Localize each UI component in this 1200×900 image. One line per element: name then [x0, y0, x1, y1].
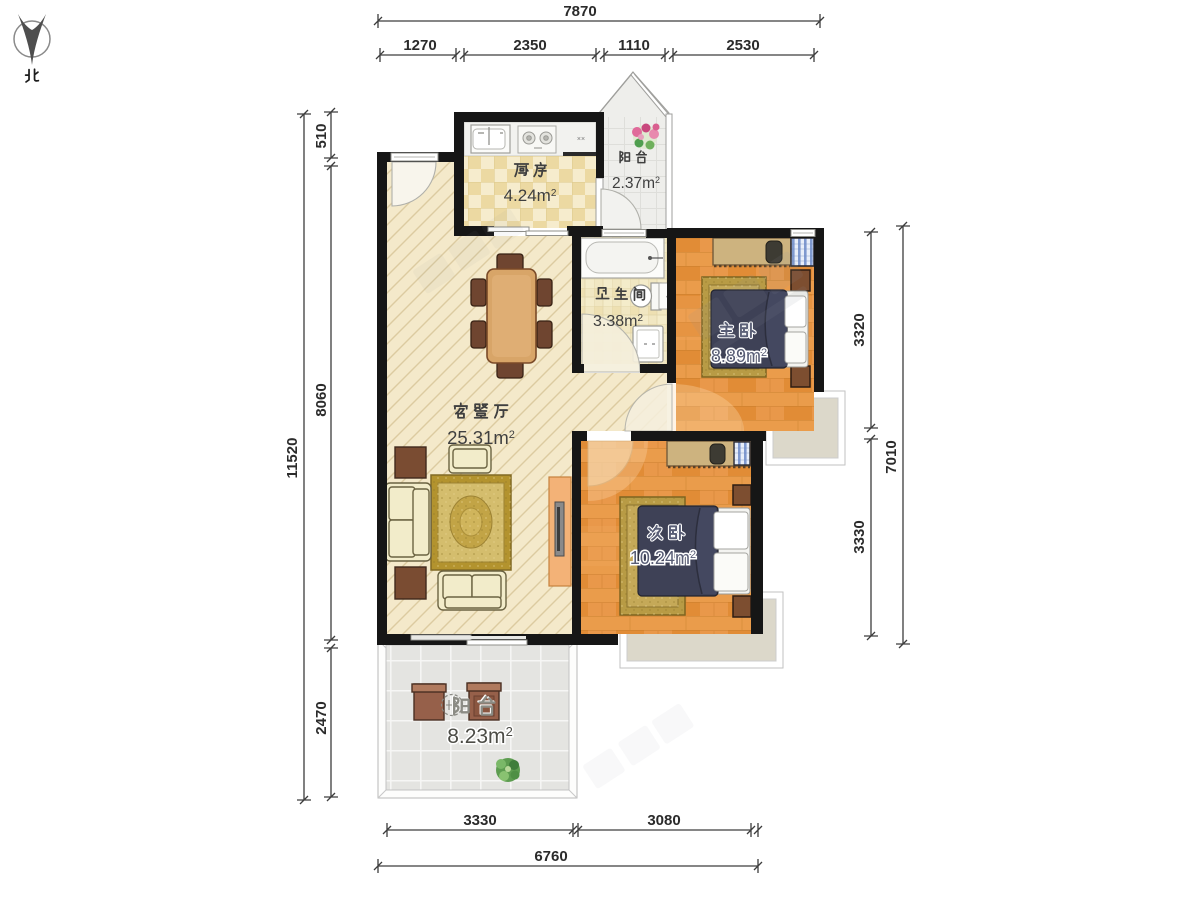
svg-text:11520: 11520	[284, 438, 301, 479]
svg-text:10.24m2: 10.24m2	[630, 548, 696, 568]
svg-text:4.24m2: 4.24m2	[504, 186, 557, 205]
svg-text:7870: 7870	[563, 3, 596, 20]
svg-text:3320: 3320	[851, 313, 868, 346]
svg-text:3330: 3330	[463, 812, 496, 829]
svg-text:3080: 3080	[647, 812, 680, 829]
svg-text:6760: 6760	[534, 848, 567, 865]
svg-text:25.31m2: 25.31m2	[447, 427, 515, 448]
svg-text:2350: 2350	[513, 37, 546, 54]
svg-text:2470: 2470	[313, 701, 330, 734]
svg-text:2530: 2530	[726, 37, 759, 54]
svg-text:1270: 1270	[403, 37, 436, 54]
svg-text:3330: 3330	[851, 520, 868, 553]
svg-text:8.23m2: 8.23m2	[447, 724, 513, 748]
svg-text:1110: 1110	[618, 37, 650, 54]
svg-text:3.38m2: 3.38m2	[593, 313, 643, 330]
svg-text:××: ××	[577, 136, 585, 143]
svg-text:8060: 8060	[313, 383, 330, 416]
svg-text:2.37m2: 2.37m2	[612, 175, 660, 192]
svg-text:510: 510	[313, 123, 330, 148]
svg-text:7010: 7010	[883, 440, 900, 473]
